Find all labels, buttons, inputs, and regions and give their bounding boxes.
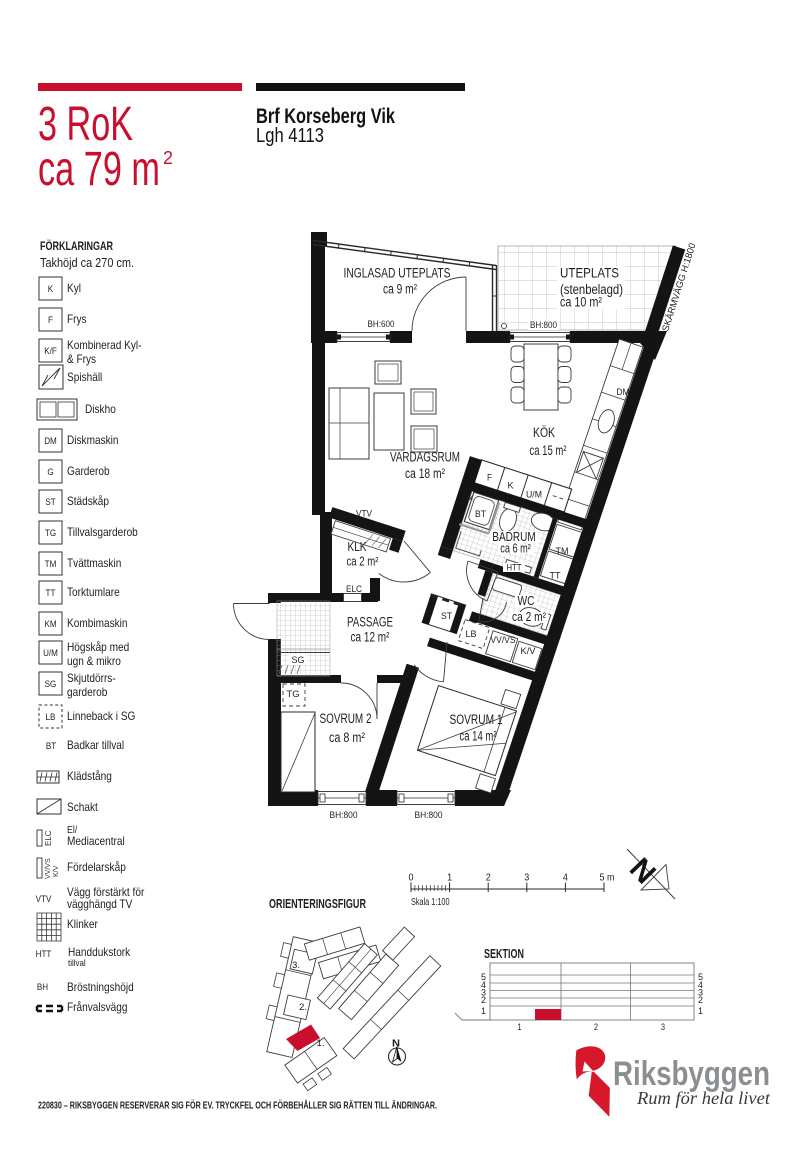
svg-text:Garderob: Garderob: [67, 464, 110, 478]
svg-text:BH:800: BH:800: [530, 320, 557, 331]
svg-text:ST: ST: [441, 611, 452, 622]
svg-text:F: F: [48, 315, 53, 326]
svg-text:HTT: HTT: [36, 949, 52, 960]
svg-text:Frys: Frys: [67, 312, 87, 326]
svg-text:VTV: VTV: [356, 509, 373, 520]
svg-text:ca 6 m²: ca 6 m²: [500, 542, 531, 556]
svg-text:1: 1: [447, 872, 452, 884]
svg-text:ca 14 m²: ca 14 m²: [460, 729, 497, 744]
svg-text:ca 2 m²: ca 2 m²: [512, 610, 546, 624]
svg-text:Handdukstork: Handdukstork: [68, 945, 131, 959]
svg-text:Tvättmaskin: Tvättmaskin: [67, 556, 121, 570]
svg-text:Klädstång: Klädstång: [67, 769, 112, 783]
svg-text:Linneback i SG: Linneback i SG: [67, 709, 135, 723]
svg-text:ELC: ELC: [346, 584, 362, 594]
svg-text:LB: LB: [466, 629, 477, 640]
svg-text:Kyl: Kyl: [67, 281, 81, 295]
svg-text:ca 12 m²: ca 12 m²: [351, 630, 390, 645]
svg-text:Kombimaskin: Kombimaskin: [67, 616, 128, 630]
svg-text:U/M: U/M: [526, 490, 542, 501]
svg-text:3: 3: [661, 1022, 665, 1032]
svg-text:ca 15 m²: ca 15 m²: [530, 443, 567, 458]
svg-text:Diskho: Diskho: [85, 402, 116, 416]
svg-text:ca 18 m²: ca 18 m²: [405, 466, 445, 481]
svg-text:Rum för hela livet: Rum för hela livet: [636, 1088, 771, 1108]
svg-text:DM: DM: [617, 387, 630, 398]
svg-text:DM: DM: [44, 436, 57, 447]
svg-text:& Frys: & Frys: [67, 352, 96, 366]
svg-text:ST: ST: [45, 497, 55, 508]
svg-text:G: G: [47, 467, 53, 478]
svg-text:Badkar tillval: Badkar tillval: [67, 738, 124, 752]
svg-text:K/V: K/V: [53, 865, 60, 877]
svg-text:Torktumlare: Torktumlare: [67, 585, 120, 599]
svg-text:2: 2: [486, 872, 491, 884]
svg-text:vägghängd TV: vägghängd TV: [67, 897, 132, 911]
svg-text:KÖK: KÖK: [533, 425, 555, 440]
svg-text:1: 1: [481, 1006, 486, 1016]
svg-text:Tillvalsgarderob: Tillvalsgarderob: [67, 525, 138, 539]
svg-text:TT: TT: [46, 588, 56, 599]
svg-text:TG: TG: [45, 528, 56, 539]
svg-text:Skjutdörrs-: Skjutdörrs-: [67, 671, 116, 685]
svg-text:Diskmaskin: Diskmaskin: [67, 433, 119, 447]
svg-text:BH: BH: [37, 982, 48, 993]
svg-text:HTT: HTT: [507, 563, 522, 574]
svg-text:VV/VS: VV/VS: [45, 858, 52, 879]
svg-text:K: K: [48, 284, 54, 295]
svg-text:1: 1: [698, 1006, 703, 1016]
svg-text:2: 2: [163, 148, 173, 168]
svg-text:Spishäll: Spishäll: [67, 370, 102, 384]
svg-text:SG: SG: [292, 655, 305, 666]
svg-text:SOVRUM 2: SOVRUM 2: [320, 711, 372, 726]
svg-text:ca 9 m²: ca 9 m²: [383, 282, 417, 297]
svg-text:K/F: K/F: [44, 346, 57, 357]
svg-text:Mediacentral: Mediacentral: [67, 834, 125, 848]
svg-text:BT: BT: [475, 509, 486, 520]
svg-text:BT: BT: [46, 741, 56, 752]
svg-text:F: F: [487, 473, 492, 484]
svg-text:1.: 1.: [317, 1038, 325, 1049]
svg-text:2: 2: [698, 995, 703, 1005]
svg-text:Klinker: Klinker: [67, 917, 98, 931]
svg-text:4: 4: [563, 872, 568, 884]
svg-text:Skala 1:100: Skala 1:100: [411, 896, 450, 908]
svg-text:Fördelarskåp: Fördelarskåp: [67, 860, 126, 874]
svg-text:2: 2: [594, 1022, 598, 1032]
svg-text:U/M: U/M: [43, 648, 58, 659]
svg-text:2.: 2.: [299, 1002, 307, 1013]
svg-text:TT: TT: [550, 571, 561, 582]
svg-text:Takhöjd ca 270 cm.: Takhöjd ca 270 cm.: [40, 255, 134, 270]
svg-text:SEKTION: SEKTION: [484, 947, 524, 961]
svg-text:Frånvalsvägg: Frånvalsvägg: [67, 1000, 128, 1014]
svg-text:BH:800: BH:800: [415, 810, 443, 821]
svg-text:Schakt: Schakt: [67, 800, 98, 814]
svg-text:LB: LB: [46, 712, 56, 723]
svg-text:VV/VS: VV/VS: [491, 635, 516, 645]
svg-text:0: 0: [409, 872, 414, 884]
svg-text:ugn & mikro: ugn & mikro: [67, 654, 121, 668]
svg-text:ca 8 m²: ca 8 m²: [329, 730, 365, 745]
svg-text:3: 3: [524, 872, 529, 884]
svg-text:ca 79 m: ca 79 m: [38, 143, 160, 196]
svg-text:Städskåp: Städskåp: [67, 494, 109, 508]
svg-text:INGLASAD UTEPLATS: INGLASAD UTEPLATS: [344, 266, 451, 281]
svg-text:PASSAGE: PASSAGE: [347, 615, 393, 630]
svg-text:220830 – RIKSBYGGEN RESERVERAR: 220830 – RIKSBYGGEN RESERVERAR SIG FÖR E…: [38, 1099, 437, 1112]
svg-text:TM: TM: [556, 546, 569, 557]
svg-text:SOVRUM 1: SOVRUM 1: [450, 712, 503, 727]
svg-text:TG: TG: [287, 689, 300, 700]
svg-text:KM: KM: [44, 619, 56, 630]
svg-text:FÖRKLARINGAR: FÖRKLARINGAR: [40, 240, 114, 253]
svg-text:Lgh 4113: Lgh 4113: [256, 125, 324, 147]
svg-text:2: 2: [481, 995, 486, 1005]
svg-text:garderob: garderob: [67, 685, 108, 699]
svg-text:TM: TM: [45, 559, 57, 570]
svg-text:1: 1: [518, 1022, 522, 1032]
svg-text:SG: SG: [45, 679, 57, 690]
svg-text:K/V: K/V: [521, 646, 536, 656]
svg-text:K: K: [508, 481, 515, 492]
svg-text:BH:600: BH:600: [368, 319, 395, 330]
svg-text:ELC: ELC: [44, 830, 53, 846]
svg-text:VTV: VTV: [36, 894, 52, 905]
svg-text:BH:800: BH:800: [330, 810, 358, 821]
svg-text:Högskåp med: Högskåp med: [67, 640, 129, 654]
svg-text:ca 10 m²: ca 10 m²: [560, 295, 602, 310]
svg-text:3.: 3.: [292, 960, 300, 971]
svg-text:ca 2 m²: ca 2 m²: [347, 555, 379, 569]
svg-text:KLK: KLK: [348, 540, 368, 554]
svg-text:ORIENTERINGSFIGUR: ORIENTERINGSFIGUR: [269, 897, 366, 911]
svg-text:Bröstningshöjd: Bröstningshöjd: [67, 980, 134, 994]
svg-text:UTEPLATS: UTEPLATS: [560, 266, 619, 281]
svg-text:Kombinerad Kyl-: Kombinerad Kyl-: [67, 338, 142, 352]
svg-text:tillval: tillval: [68, 958, 86, 969]
svg-text:WC: WC: [518, 594, 535, 608]
svg-text:5 m: 5 m: [600, 872, 615, 884]
